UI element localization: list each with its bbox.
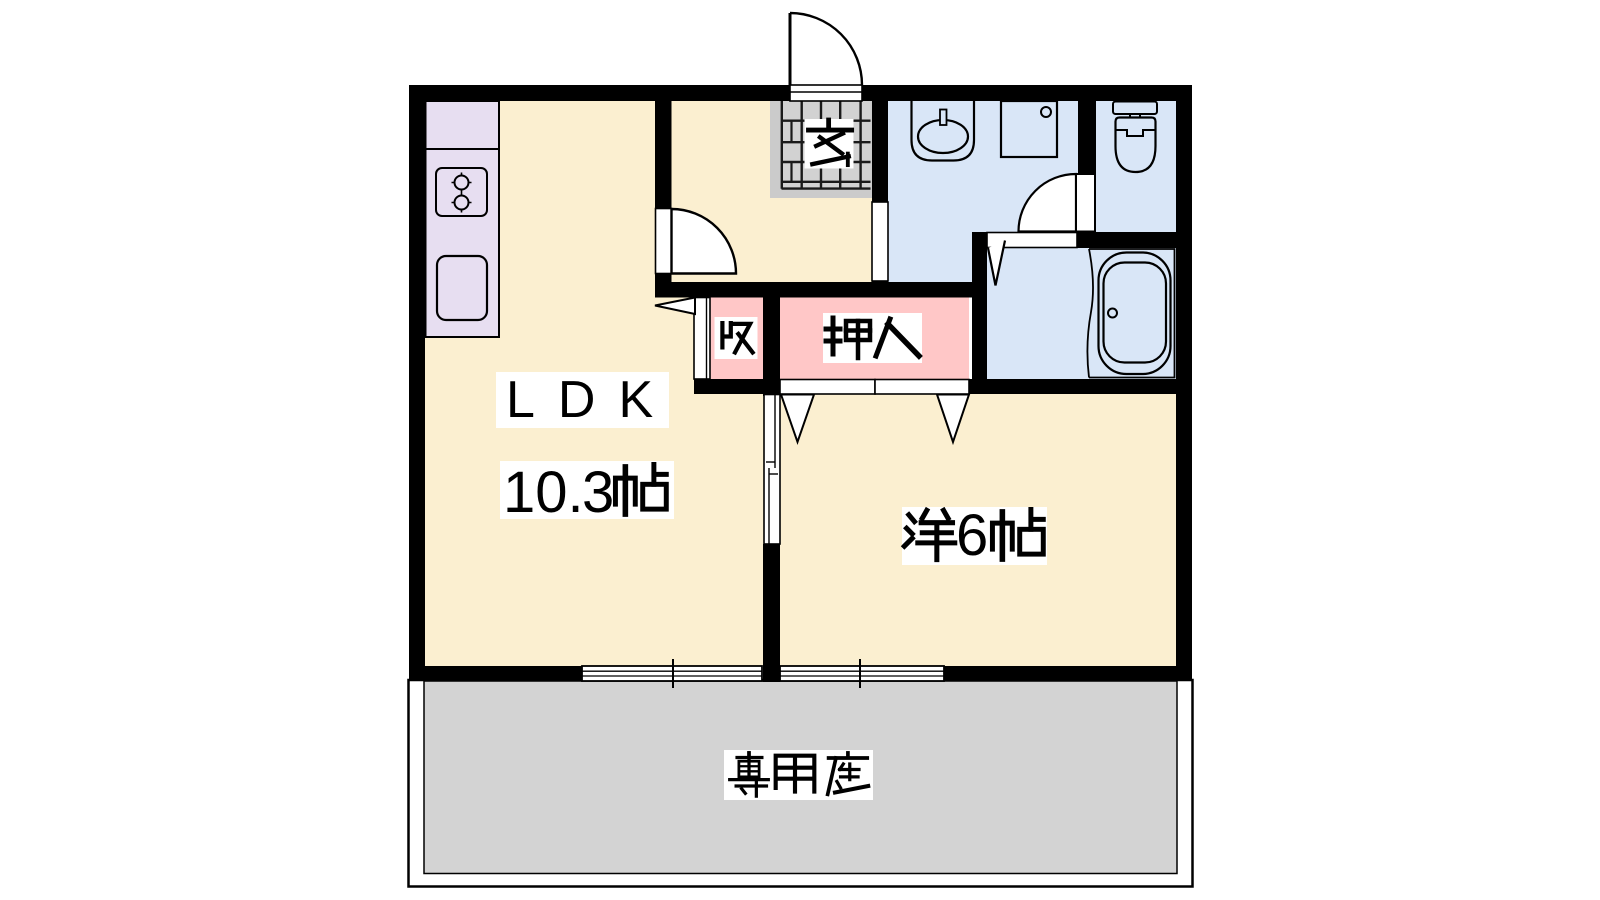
svg-text:LDK: LDK (506, 371, 676, 429)
svg-text:3: 3 (582, 460, 614, 525)
svg-text:6: 6 (956, 503, 988, 568)
svg-text:10.: 10. (503, 460, 584, 525)
